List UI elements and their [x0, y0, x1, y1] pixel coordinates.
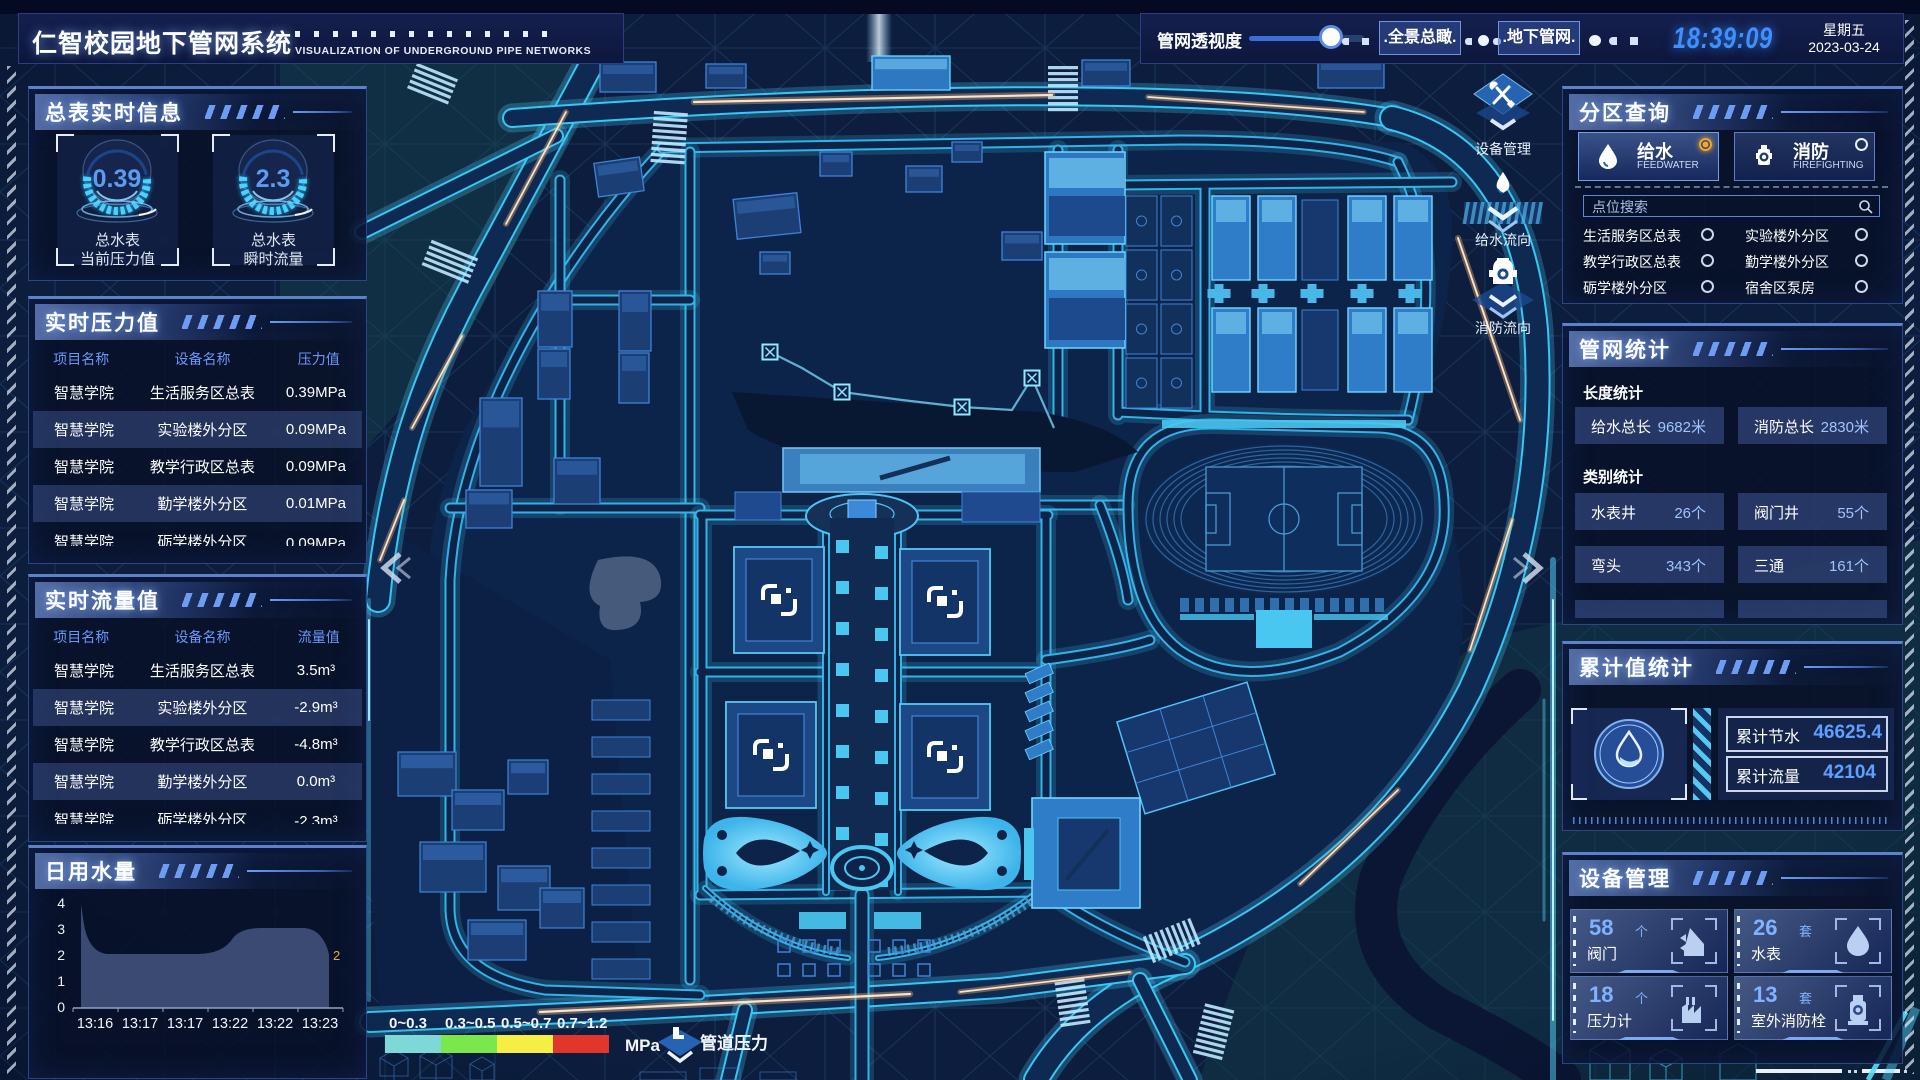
svg-text:0: 0 — [57, 999, 65, 1015]
svg-text:消防流向: 消防流向 — [1475, 320, 1531, 336]
svg-text:13:16: 13:16 — [77, 1016, 113, 1032]
svg-text:4: 4 — [57, 896, 65, 911]
svg-text:MPa: MPa — [625, 1036, 661, 1055]
svg-text:1: 1 — [57, 973, 65, 989]
svg-text:2.3: 2.3 — [256, 165, 291, 193]
svg-text:2: 2 — [333, 948, 340, 963]
svg-text:给水流向: 给水流向 — [1475, 232, 1531, 248]
svg-text:13:22: 13:22 — [212, 1016, 248, 1032]
svg-text:13:22: 13:22 — [257, 1016, 293, 1032]
svg-text:0.39: 0.39 — [93, 165, 142, 193]
svg-text:13:23: 13:23 — [302, 1016, 338, 1032]
svg-text:13:17: 13:17 — [167, 1016, 203, 1032]
svg-text:0.3~0.5: 0.3~0.5 — [445, 1015, 495, 1032]
svg-text:0~0.3: 0~0.3 — [389, 1015, 427, 1032]
svg-text:2: 2 — [57, 947, 65, 963]
svg-text:设备管理: 设备管理 — [1475, 141, 1531, 157]
svg-text:管道压力: 管道压力 — [700, 1033, 768, 1053]
svg-text:0.5~0.7: 0.5~0.7 — [501, 1015, 551, 1032]
svg-text:13:17: 13:17 — [122, 1016, 158, 1032]
svg-text:0.7~1.2: 0.7~1.2 — [557, 1015, 607, 1032]
svg-text:3: 3 — [57, 921, 65, 937]
